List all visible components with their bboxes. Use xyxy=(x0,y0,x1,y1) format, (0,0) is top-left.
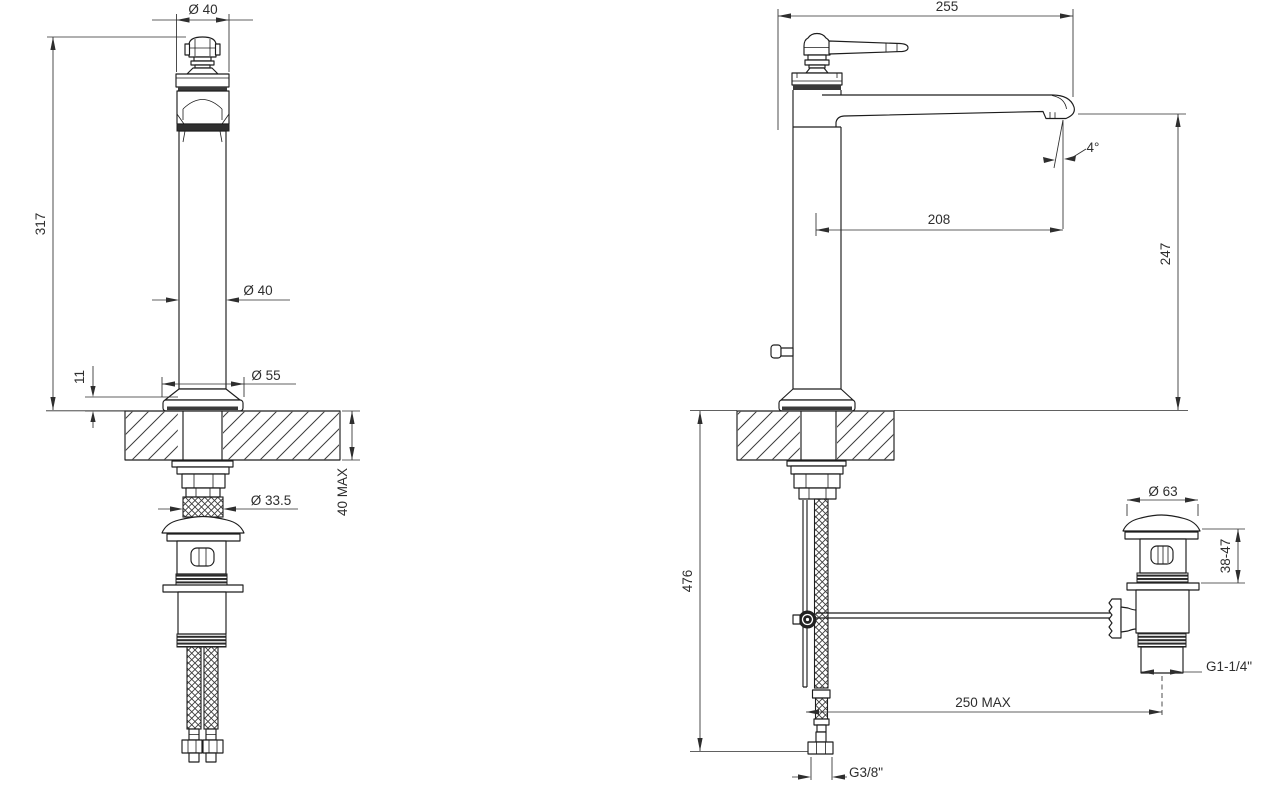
shank-braid xyxy=(183,497,223,517)
dim-label-drain-offset: 250 MAX xyxy=(955,695,1011,710)
technical-drawing-page: Ø 40 317 xyxy=(0,0,1267,789)
countertop-section-front xyxy=(125,411,340,461)
faucet-handle-front xyxy=(176,37,229,131)
dim-waste-height-range: 38-47 xyxy=(1201,529,1245,583)
dim-label-total-height: 317 xyxy=(33,213,48,236)
dim-outlet-height: 247 xyxy=(1078,114,1186,410)
dim-label-top-diameter: Ø 40 xyxy=(188,2,217,17)
supply-hose-side xyxy=(815,499,829,688)
linkage-serrated-clamp xyxy=(1109,599,1121,638)
dim-label-shank-diameter: Ø 33.5 xyxy=(251,493,292,508)
dim-label-waste-thread: G1-1/4" xyxy=(1206,659,1252,674)
dim-label-deck-thickness: 40 MAX xyxy=(335,468,350,516)
waste-cap-front xyxy=(162,517,244,534)
side-view: 255 xyxy=(680,0,1252,780)
faucet-body-front xyxy=(163,131,243,411)
spout xyxy=(822,95,1074,127)
dim-label-outlet-height: 247 xyxy=(1158,243,1173,266)
faucet-dimension-drawing: Ø 40 317 xyxy=(0,0,1267,789)
dim-label-below-deck-depth: 476 xyxy=(680,570,695,593)
waste-cap-side xyxy=(1123,515,1200,531)
dim-drain-offset: 250 MAX xyxy=(806,695,1162,715)
supply-hose-left xyxy=(187,647,201,729)
front-view: Ø 40 317 xyxy=(33,2,360,762)
dim-label-base-diameter: Ø 55 xyxy=(251,368,280,383)
dim-label-body-diameter: Ø 40 xyxy=(243,283,272,298)
supply-hose-right xyxy=(204,647,218,729)
dim-waste-cap-diameter: Ø 63 xyxy=(1127,484,1198,516)
popup-rod xyxy=(803,500,807,687)
lever-bar xyxy=(829,41,908,54)
dim-label-supply-thread: G3/8" xyxy=(849,765,883,780)
base-flange-taper xyxy=(165,389,240,400)
dim-label-spout-angle: 4° xyxy=(1087,140,1100,155)
popup-rod-knob xyxy=(771,345,781,358)
dim-label-waste-height-range: 38-47 xyxy=(1218,539,1233,574)
dim-label-waste-cap-diameter: Ø 63 xyxy=(1148,484,1177,499)
dim-spout-reach: 208 xyxy=(816,212,1063,236)
dim-label-base-lip: 11 xyxy=(72,370,87,384)
dim-label-spout-reach: 208 xyxy=(928,212,951,227)
countertop-section-side xyxy=(690,411,1188,462)
popup-waste-assembly: Ø 63 G1-1/4" 38- xyxy=(1123,484,1252,716)
dim-shank-diameter: Ø 33.5 xyxy=(158,493,298,512)
dim-total-height: 317 xyxy=(33,37,186,411)
faucet-handle-side xyxy=(792,34,908,91)
dim-label-overall-reach: 255 xyxy=(936,0,959,14)
dim-supply-thread: G3/8" xyxy=(792,757,883,780)
under-deck-assembly-front xyxy=(162,461,244,762)
faucet-body-side xyxy=(771,90,1074,411)
dim-spout-angle: 4° xyxy=(1043,120,1099,229)
waste-linkage-rod xyxy=(816,599,1136,638)
